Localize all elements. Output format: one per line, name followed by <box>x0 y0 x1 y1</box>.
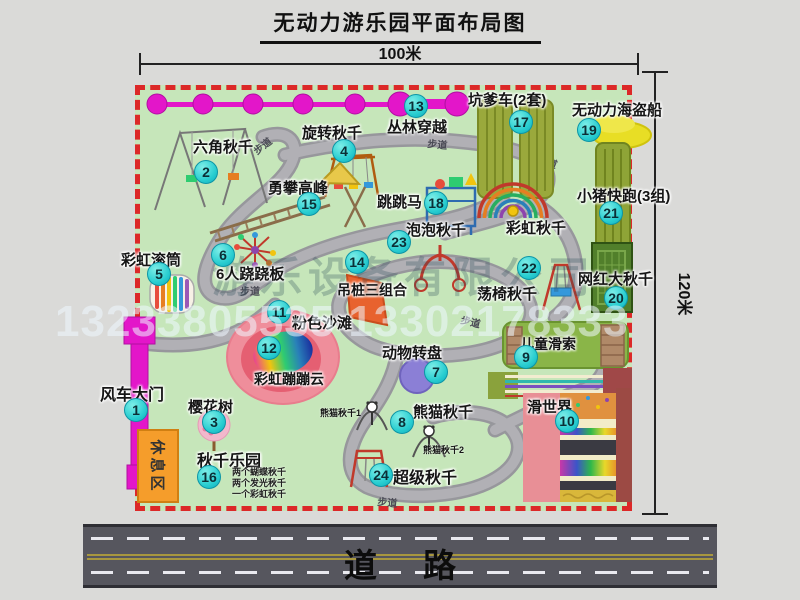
road: 道路 <box>83 524 717 588</box>
poi-badge-19: 19 <box>577 118 601 142</box>
poi-badge-24: 24 <box>369 463 393 487</box>
poi-badge-4: 4 <box>332 139 356 163</box>
page-title: 无动力游乐园平面布局图 <box>260 7 541 44</box>
poi-label-12: 彩虹蹦蹦云 <box>254 369 324 389</box>
poi-badge-18: 18 <box>424 191 448 215</box>
poi-badge-3: 3 <box>202 410 226 434</box>
poi-label-2: 六角秋千 <box>193 136 253 157</box>
poi-badge-6: 6 <box>211 243 235 267</box>
top-dimension-line <box>140 63 638 65</box>
poi-badge-10: 10 <box>555 409 579 433</box>
poi-label-17: 坑爹车(2套) <box>468 89 546 110</box>
poi-label-24: 超级秋千 <box>393 464 457 488</box>
poi-badge-2: 2 <box>194 160 218 184</box>
poi-badge-16: 16 <box>197 465 221 489</box>
swing-note-3: 一个彩虹秋千 <box>232 489 286 500</box>
poi-badge-15: 15 <box>297 192 321 216</box>
poi-badge-14: 14 <box>345 250 369 274</box>
sub-label-panda1: 熊猫秋千1 <box>320 406 361 419</box>
poi-label-21: 小猪快跑(3组) <box>577 185 670 206</box>
page-title-wrap: 无动力游乐园平面布局图 <box>0 7 800 44</box>
road-label: 道路 <box>83 539 717 587</box>
swing-note-2: 两个发光秋千 <box>232 478 286 489</box>
poi-label-8: 熊猫秋千 <box>413 401 473 422</box>
right-dimension-line <box>654 72 656 515</box>
poi-badge-7: 7 <box>424 360 448 384</box>
top-dimension-tick-right <box>637 53 639 75</box>
poi-badge-17: 17 <box>509 110 533 134</box>
poi-badge-21: 21 <box>599 201 623 225</box>
park-layout-screenshot: 无动力游乐园平面布局图 100米 120米 <box>0 0 800 600</box>
poi-badge-1: 1 <box>124 398 148 422</box>
rest-area-label: 休息区 <box>148 437 169 497</box>
poi-badge-23: 23 <box>387 230 411 254</box>
right-dimension-tick-bottom <box>642 513 668 515</box>
poi-label-13: 丛林穿越 <box>387 116 447 137</box>
poi-badge-9: 9 <box>514 345 538 369</box>
swing-park-notes: 两个蝴蝶秋千 两个发光秋千 一个彩虹秋千 <box>232 467 286 500</box>
right-dimension-tick-top <box>642 71 668 73</box>
swing-note-1: 两个蝴蝶秋千 <box>232 467 286 478</box>
poi-label-23: 泡泡秋千 <box>406 219 466 240</box>
poi-label-18: 跳跳马 <box>377 191 422 212</box>
poi-badge-22: 22 <box>517 256 541 280</box>
poi-badge-8: 8 <box>390 410 414 434</box>
poi-badge-5: 5 <box>147 262 171 286</box>
top-dimension-tick-left <box>139 53 141 75</box>
right-dimension-label: 120米 <box>674 258 698 330</box>
poi-label-19: 无动力海盗船 <box>572 99 662 120</box>
sub-label-panda2: 熊猫秋千2 <box>423 443 464 456</box>
poi-label-rainbow-swing: 彩虹秋千 <box>506 217 566 238</box>
poi-label-4: 旋转秋千 <box>302 122 362 143</box>
poi-label-15: 勇攀高峰 <box>268 177 328 198</box>
phone-watermark: 13233805535 13302178333 <box>55 297 629 347</box>
poi-badge-13: 13 <box>404 94 428 118</box>
